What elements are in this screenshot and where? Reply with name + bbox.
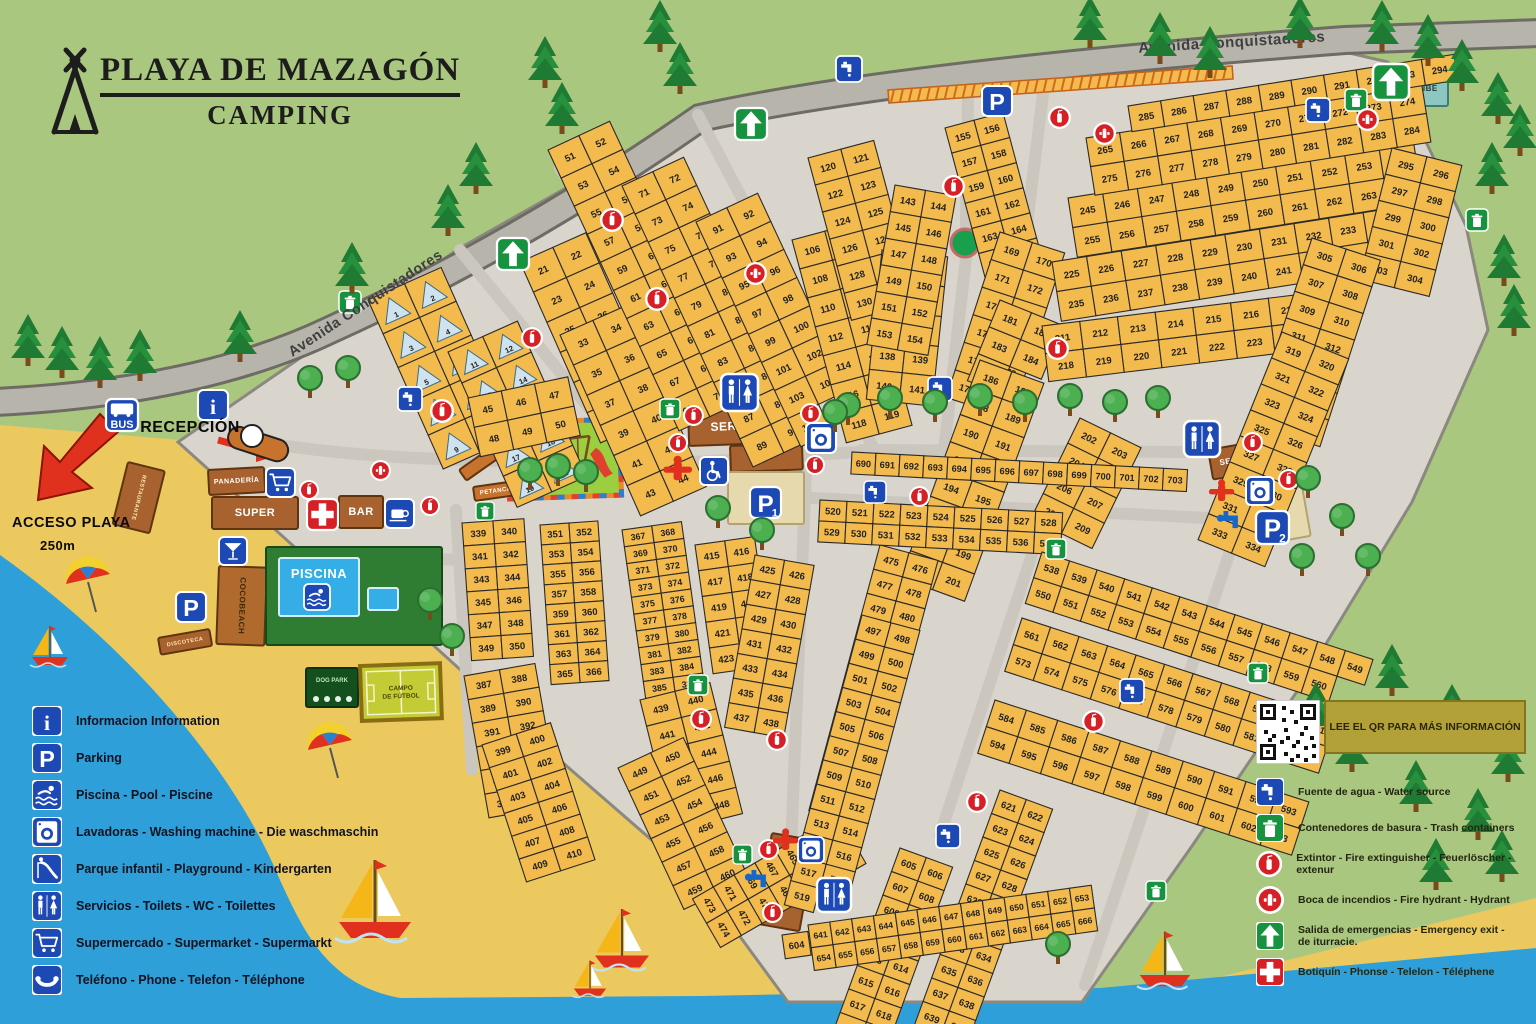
site-title: PLAYA DE MAZAGÓN — [100, 52, 460, 97]
plot-number: 695 — [975, 465, 991, 476]
plot-number: 650 — [1009, 901, 1025, 913]
plot-number: 346 — [506, 595, 523, 607]
extintor-icon — [420, 496, 440, 516]
hydrant-icon — [1356, 108, 1379, 131]
legend-right-item: Salida de emergencias - Emergency exit -… — [1256, 922, 1536, 950]
plot-number: 536 — [1012, 537, 1028, 549]
plot-number: 664 — [1034, 921, 1050, 933]
washer-icon — [806, 423, 836, 453]
site-subtitle: CAMPING — [100, 100, 460, 131]
plot-number: 421 — [714, 627, 732, 640]
plot-number: 221 — [1171, 346, 1189, 359]
plot-number: 375 — [640, 598, 656, 610]
plot-number: 357 — [551, 589, 568, 601]
watersrc-icon — [836, 56, 862, 82]
plot-number: 521 — [852, 508, 869, 520]
emergency-icon — [1373, 64, 1409, 100]
legend-right-item: Contenedores de basura - Trash container… — [1256, 814, 1536, 842]
plot-number: 641 — [813, 929, 829, 941]
plot-number: 360 — [581, 607, 598, 619]
plot-number: 531 — [878, 530, 895, 542]
legend-right: LEE EL QR PARA MÁS INFORMACIÓN Fuente de… — [1256, 700, 1536, 986]
plot-block: 3513523533543553563573583593603613623633… — [540, 521, 609, 685]
trash-icon — [688, 675, 708, 695]
plot-number: 534 — [958, 534, 975, 546]
plot-number: 377 — [642, 615, 658, 627]
plot-number: 354 — [577, 547, 594, 559]
plot-number: 213 — [1130, 323, 1147, 336]
plot-number: 343 — [473, 574, 490, 586]
svg-text:2: 2 — [1279, 531, 1286, 545]
plot-number: 642 — [834, 926, 850, 938]
trash-icon — [1046, 539, 1066, 559]
plot-number: 693 — [927, 462, 943, 473]
washer-icon — [1246, 477, 1274, 505]
washer-icon — [32, 817, 62, 847]
pool-small — [368, 588, 398, 610]
plot-number: 604 — [788, 939, 806, 952]
plot-number: 645 — [900, 917, 916, 929]
svg-text:SUPER: SUPER — [235, 507, 275, 519]
plot-number: 220 — [1133, 351, 1150, 364]
emergency-icon — [497, 238, 529, 270]
plot-number: 423 — [718, 653, 735, 666]
plot-number: 694 — [951, 464, 968, 475]
plot-number: 371 — [635, 564, 651, 576]
hydrant-icon — [744, 262, 767, 285]
plot-number: 370 — [662, 543, 678, 555]
plot-number: 643 — [856, 923, 872, 935]
plot-number: 141 — [909, 384, 927, 397]
plot-number: 212 — [1092, 327, 1109, 340]
swim-legend-icon — [32, 780, 62, 810]
plot-number: 340 — [501, 526, 518, 538]
svg-text:P: P — [39, 746, 55, 772]
plot-number: 417 — [707, 576, 724, 589]
legend-left-label: Parque infantil - Playground - Kindergar… — [76, 862, 332, 876]
parking-icon: P1 — [750, 487, 781, 519]
info-icon: i — [32, 706, 62, 736]
dog-park: DOG PARK — [306, 668, 358, 707]
panaderia: PANADERÍA — [208, 467, 265, 495]
plot-number: 663 — [1012, 924, 1028, 936]
watersrc-icon — [936, 824, 960, 848]
plot-number: 138 — [879, 351, 896, 364]
plot-number: 356 — [579, 567, 596, 579]
plot-number: 348 — [507, 618, 524, 630]
redcross-legend-icon — [1256, 958, 1284, 986]
plot-number: 416 — [733, 546, 750, 559]
extintor-icon — [1256, 851, 1282, 877]
plot-number: 362 — [583, 627, 600, 639]
washer-legend-icon — [32, 817, 62, 847]
plot-number: 649 — [987, 904, 1003, 916]
trash-icon — [1466, 209, 1488, 231]
watersrc-icon — [398, 387, 422, 411]
legend-right-item: Boca de incendios - Fire hydrant - Hydra… — [1256, 886, 1536, 914]
cocobeach: COCOBEACH — [216, 566, 267, 646]
legend-left-item: Parque infantil - Playground - Kindergar… — [32, 854, 378, 884]
extintor-icon — [600, 208, 624, 232]
plot-number: 654 — [816, 952, 832, 964]
watersrc-legend-icon — [1256, 778, 1284, 806]
plot-number: 385 — [651, 682, 667, 694]
plot-number: 661 — [968, 930, 984, 942]
wc-icon — [817, 878, 851, 912]
plot-number: 648 — [965, 908, 981, 920]
legend-right-label: Boca de incendios - Fire hydrant - Hydra… — [1298, 894, 1510, 906]
extintor-icon — [909, 486, 930, 507]
plot-number: 646 — [922, 914, 938, 926]
plot-number: 698 — [1047, 469, 1063, 480]
hydrant-icon — [1093, 122, 1116, 145]
legend-left-label: Lavadoras - Washing machine - Die waschm… — [76, 825, 378, 839]
slide-legend-icon — [32, 854, 62, 884]
cocktail-icon — [219, 537, 247, 565]
svg-text:P: P — [989, 89, 1005, 115]
qr-banner: LEE EL QR PARA MÁS INFORMACIÓN — [1324, 700, 1526, 754]
plot-number: 659 — [925, 936, 941, 948]
svg-text:P: P — [183, 595, 199, 621]
plot-number: 655 — [838, 949, 854, 961]
extintor-icon — [668, 433, 688, 453]
plot-number: 533 — [931, 533, 947, 545]
parking-icon: P2 — [1256, 511, 1289, 545]
coffee-icon — [385, 499, 414, 528]
plot-number: 344 — [504, 572, 521, 584]
plot-number: 368 — [660, 526, 676, 538]
plot-number: 46 — [515, 396, 528, 409]
legend-right-item: Extintor - Fire extinguisher - Feuerlösc… — [1256, 850, 1536, 878]
plot-number: 381 — [647, 648, 663, 660]
plot-number: 47 — [548, 389, 561, 402]
legend-left-label: Servicios - Toilets - WC - Toilettes — [76, 899, 276, 913]
parking-icon: P — [176, 592, 206, 622]
plot-number: 49 — [521, 426, 534, 439]
phone-icon — [32, 965, 62, 995]
map-label: PISCINA — [291, 566, 347, 581]
plot-number: 349 — [478, 643, 495, 655]
plot-number: 658 — [903, 940, 919, 952]
super: SUPER — [212, 497, 298, 529]
redcross-icon — [1256, 958, 1284, 986]
plot-number: 50 — [554, 419, 567, 432]
extintor-icon — [942, 175, 965, 198]
extintor-icon — [800, 403, 821, 424]
plot-number: 696 — [999, 466, 1015, 477]
plot-number: 660 — [947, 933, 963, 945]
legend-right-label: Extintor - Fire extinguisher - Feuerlösc… — [1296, 852, 1536, 876]
legend-left-item: iInformacion Information — [32, 706, 378, 736]
legend-left-item: Piscina - Pool - Piscine — [32, 780, 378, 810]
plot-number: 363 — [555, 649, 572, 661]
emergency-icon — [1256, 922, 1284, 950]
svg-text:CAMPO: CAMPO — [389, 685, 413, 693]
wc-icon — [32, 891, 62, 921]
plot-number: 341 — [472, 551, 489, 563]
plot-number: 700 — [1095, 471, 1111, 482]
plot-number: 382 — [676, 644, 692, 656]
plot-number: 535 — [985, 536, 1002, 548]
plot-number: 379 — [644, 632, 660, 644]
plot-number: 353 — [548, 549, 565, 561]
legend-left-label: Teléfono - Phone - Telefon - Téléphone — [76, 973, 305, 987]
plot-number: 528 — [1040, 518, 1056, 530]
extintor-icon — [1242, 432, 1263, 453]
swim-icon — [32, 780, 62, 810]
access-icon — [700, 457, 728, 485]
plot-number: 223 — [1246, 337, 1263, 350]
legend-left: iInformacion InformationPParkingPiscina … — [32, 706, 378, 995]
legend-right-label: Fuente de agua - Water source — [1298, 786, 1450, 798]
wc-legend-icon — [32, 891, 62, 921]
hydrant-legend-icon — [1256, 886, 1284, 914]
plot-number: 652 — [1052, 895, 1068, 907]
plot-number: 415 — [703, 550, 721, 563]
extintor-icon — [299, 480, 319, 500]
hydrant-icon — [370, 460, 391, 481]
legend-left-label: Piscina - Pool - Piscine — [76, 788, 213, 802]
plot-number: 524 — [933, 512, 950, 524]
svg-text:DOG PARK: DOG PARK — [316, 678, 349, 684]
trash-icon — [660, 399, 680, 419]
redcross-icon — [307, 499, 338, 530]
extintor-icon — [1046, 337, 1069, 360]
trash-legend-icon — [1256, 814, 1284, 842]
plot-number: 48 — [488, 433, 501, 446]
parking-icon: P — [32, 743, 62, 773]
swim-icon — [304, 584, 330, 610]
svg-text:BAR: BAR — [348, 506, 373, 518]
watersrc-icon — [1306, 98, 1330, 122]
extintor-icon — [766, 729, 788, 751]
qr-row: LEE EL QR PARA MÁS INFORMACIÓN — [1256, 700, 1536, 764]
plot-number: 530 — [851, 529, 867, 541]
plot-number: 374 — [667, 577, 683, 589]
hydrant-icon — [1256, 886, 1284, 914]
plot-number: 701 — [1119, 472, 1135, 483]
extintor-icon — [762, 902, 783, 923]
plot-number: 644 — [878, 920, 894, 932]
plot-number: 369 — [632, 547, 648, 559]
plot-number: 378 — [672, 611, 688, 623]
trash-icon — [1248, 663, 1268, 683]
extintor-legend-icon — [1256, 850, 1282, 878]
legend-right-label: Salida de emergencias - Emergency exit -… — [1298, 924, 1505, 948]
legend-left-item: Lavadoras - Washing machine - Die waschm… — [32, 817, 378, 847]
map-label: 250m — [40, 538, 75, 553]
plot-block: 604 — [782, 931, 811, 958]
plot-number: 526 — [986, 515, 1002, 527]
extintor-icon — [1082, 710, 1105, 733]
legend-left-item: PParking — [32, 743, 378, 773]
trash-icon — [476, 502, 494, 520]
plot-number: 358 — [580, 587, 597, 599]
extintor-icon — [1048, 106, 1071, 129]
cart-icon — [266, 468, 295, 497]
trash-icon — [1345, 89, 1367, 111]
plot-number: 522 — [879, 509, 895, 521]
info-legend-icon: i — [32, 706, 62, 736]
extintor-icon — [966, 791, 988, 813]
plot-number: 347 — [476, 620, 493, 632]
plot-number: 351 — [547, 529, 564, 541]
svg-text:BUS: BUS — [111, 419, 134, 431]
map-label: ACCESO PLAYA — [12, 515, 131, 531]
plot-block: 339340341342343344345346347348349350 — [462, 519, 533, 661]
plot-number: 366 — [586, 666, 603, 678]
legend-left-label: Parking — [76, 751, 122, 765]
info-icon: i — [198, 390, 228, 420]
trash-icon — [1146, 881, 1166, 901]
legend-right-label: Contenedores de basura - Trash container… — [1298, 822, 1514, 834]
plot-number: 699 — [1071, 470, 1087, 481]
plot-number: 364 — [584, 646, 601, 658]
plot-number: 656 — [859, 946, 875, 958]
cart-legend-icon — [32, 928, 62, 958]
wc-icon — [721, 374, 758, 411]
watersrc-icon — [864, 481, 886, 503]
plot-number: 665 — [1056, 918, 1072, 930]
extintor-icon — [645, 287, 669, 311]
bus-icon: BUS — [106, 399, 138, 431]
extintor-icon — [430, 399, 454, 423]
plot-number: 523 — [906, 510, 922, 522]
phone-legend-icon — [32, 965, 62, 995]
plot-number: 653 — [1074, 892, 1090, 904]
slide-icon — [32, 854, 62, 884]
plot-number: 527 — [1013, 516, 1029, 528]
plot-number: 376 — [669, 594, 685, 606]
plot-number: 222 — [1208, 341, 1225, 354]
plot-number: 702 — [1143, 474, 1159, 485]
plot-number: 419 — [710, 602, 727, 615]
plot-number: 339 — [470, 528, 487, 540]
emergency-legend-icon — [1256, 922, 1284, 950]
extintor-icon — [521, 327, 543, 349]
plot-number: 703 — [1167, 475, 1183, 486]
legend-right-item: Fuente de agua - Water source — [1256, 778, 1536, 806]
plot-number: 361 — [554, 629, 571, 641]
plot-number: 355 — [550, 569, 567, 581]
plot-number: 219 — [1095, 355, 1112, 368]
plot-number: 532 — [904, 531, 920, 543]
svg-text:i: i — [210, 395, 216, 419]
plot-number: 647 — [943, 911, 959, 923]
plot-number: 365 — [557, 668, 574, 680]
watersrc-icon — [1120, 679, 1144, 703]
svg-text:1: 1 — [772, 507, 778, 519]
legend-left-item: Teléfono - Phone - Telefon - Téléphone — [32, 965, 378, 995]
plot-number: 691 — [879, 460, 895, 471]
plot-number: 529 — [824, 527, 840, 539]
extintor-icon — [683, 405, 704, 426]
parking-legend-icon: P — [32, 743, 62, 773]
plot-number: 367 — [630, 531, 646, 543]
emergency-icon — [735, 108, 767, 140]
plot-number: 651 — [1031, 898, 1047, 910]
plot-number: 697 — [1023, 467, 1039, 478]
cart-icon — [32, 928, 62, 958]
plot-number: 662 — [990, 927, 1006, 939]
plot-number: 215 — [1205, 313, 1223, 326]
plot-number: 372 — [665, 560, 681, 572]
parking-icon: P — [982, 86, 1012, 116]
camping-map-stage: RESTAURANTEPANADERÍASUPERBARDISCOTECACOC… — [0, 0, 1536, 1024]
plot-number: 359 — [553, 609, 570, 621]
plot-number: 383 — [649, 665, 665, 677]
washer-icon — [798, 837, 824, 863]
extintor-icon — [690, 708, 712, 730]
legend-left-label: Informacion Information — [76, 714, 220, 728]
plot-number: 216 — [1243, 309, 1260, 322]
plot-number: 139 — [912, 354, 929, 367]
plot-number: 218 — [1058, 360, 1075, 373]
plot-number: 373 — [637, 581, 653, 593]
inner-road — [862, 450, 1190, 452]
plot-number: 352 — [576, 527, 593, 539]
legend-right-label: Botiquín - Phonse - Telelon - Téléphene — [1298, 966, 1494, 978]
plot-number: 690 — [855, 459, 871, 470]
trash-icon — [1256, 814, 1284, 842]
bar: BAR — [339, 496, 383, 528]
svg-text:i: i — [44, 711, 50, 735]
map-label: RECEPCIÓN — [140, 417, 240, 436]
plot-number: 380 — [674, 627, 690, 639]
plot-number: 214 — [1167, 318, 1185, 331]
plot-number: 657 — [881, 943, 897, 955]
extintor-icon — [805, 455, 825, 475]
qr-code — [1256, 700, 1320, 764]
legend-right-item: Botiquín - Phonse - Telelon - Téléphene — [1256, 958, 1536, 986]
wc-icon — [1184, 421, 1220, 457]
watersrc-icon — [1256, 778, 1284, 806]
legend-left-item: Supermercado - Supermarket - Supermarkt — [32, 928, 378, 958]
plot-number: 520 — [825, 506, 841, 518]
plot-number: 345 — [475, 597, 492, 609]
plot-number: 692 — [903, 461, 919, 472]
trash-icon — [733, 845, 752, 864]
plot-number: 666 — [1077, 915, 1093, 927]
title-block: PLAYA DE MAZAGÓN CAMPING — [100, 52, 460, 131]
plot-number: 342 — [503, 549, 520, 561]
legend-left-item: Servicios - Toilets - WC - Toilettes — [32, 891, 378, 921]
plot-number: 525 — [959, 513, 976, 525]
plot-number: 384 — [679, 661, 695, 673]
plot-number: 350 — [509, 641, 526, 653]
legend-left-label: Supermercado - Supermarket - Supermarkt — [76, 936, 332, 950]
